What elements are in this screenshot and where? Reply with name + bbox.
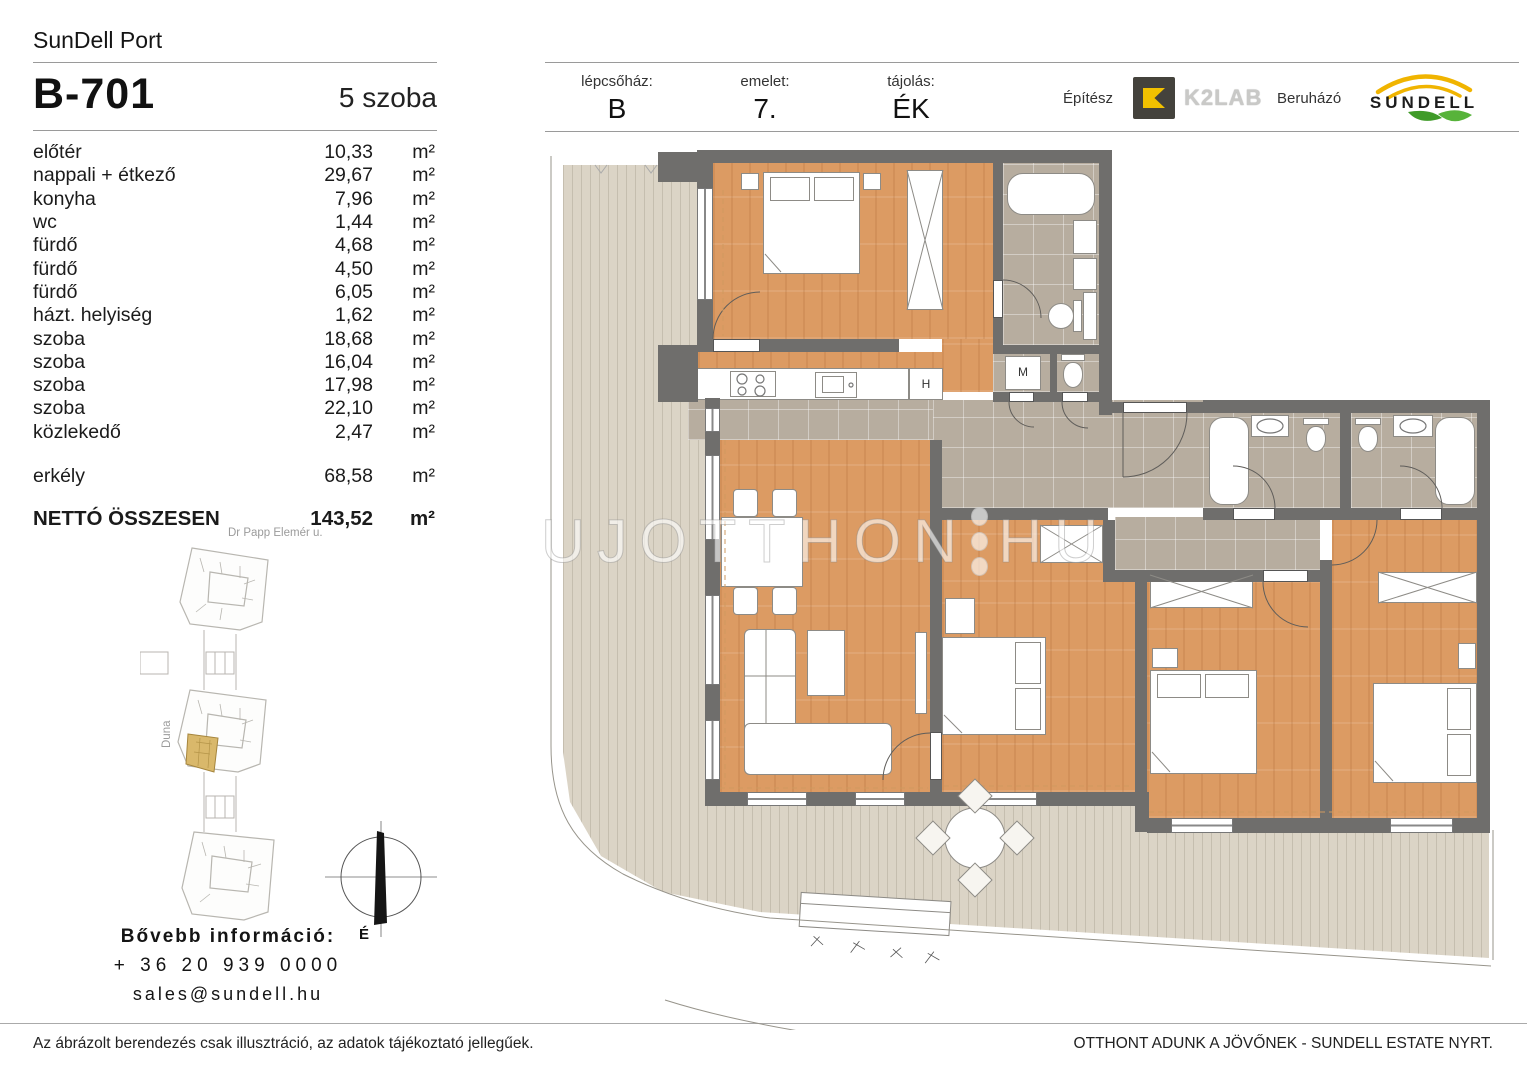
pillow bbox=[1015, 688, 1041, 730]
wall bbox=[905, 792, 975, 806]
bathtub-icon bbox=[1007, 173, 1095, 215]
nightstand bbox=[1152, 648, 1178, 668]
area-unit: m² bbox=[373, 211, 435, 234]
window bbox=[705, 720, 720, 780]
pillow bbox=[1157, 674, 1201, 698]
wall bbox=[1088, 392, 1110, 402]
door-threshold bbox=[930, 732, 942, 780]
river-label: Duna bbox=[161, 720, 173, 748]
toilet-icon bbox=[1048, 303, 1074, 329]
north-needle-icon bbox=[374, 831, 387, 925]
table-row: konyha7,96m² bbox=[33, 188, 435, 211]
wall bbox=[1203, 400, 1490, 413]
room-name: szoba bbox=[33, 328, 283, 351]
project-title: SunDell Port bbox=[33, 27, 162, 54]
area-unit: m² bbox=[373, 421, 435, 444]
slogan-text: OTTHONT ADUNK A JÖVŐNEK - SUNDELL ESTATE… bbox=[1074, 1035, 1493, 1053]
wall bbox=[1105, 402, 1123, 413]
balcony-row: erkély68,58m² bbox=[33, 465, 435, 488]
wall bbox=[760, 339, 899, 352]
architect-label: Építész bbox=[1063, 90, 1113, 107]
street-label: Dr Papp Elemér u. bbox=[228, 527, 323, 539]
area-unit: m² bbox=[373, 328, 435, 351]
staircase-value: B bbox=[552, 93, 682, 125]
room-name: fürdő bbox=[33, 258, 283, 281]
area-unit: m² bbox=[373, 234, 435, 257]
north-label: É bbox=[359, 926, 369, 943]
leaf-icon bbox=[1408, 111, 1442, 121]
developer-label: Beruházó bbox=[1277, 90, 1341, 107]
room-name: wc bbox=[33, 211, 283, 234]
window bbox=[747, 792, 807, 806]
toilet-icon bbox=[1306, 426, 1326, 452]
connector bbox=[204, 772, 236, 832]
area-unit: m² bbox=[373, 281, 435, 304]
room-area: 68,58 bbox=[283, 465, 373, 488]
wall bbox=[1340, 413, 1351, 510]
kitchen-floor bbox=[688, 400, 935, 440]
room-name: fürdő bbox=[33, 281, 283, 304]
washbasin-icon bbox=[1393, 415, 1433, 437]
bathtub-icon bbox=[1209, 417, 1249, 505]
washbasin-icon bbox=[1251, 415, 1289, 437]
nightstand bbox=[741, 173, 759, 190]
terrace-door bbox=[855, 792, 905, 806]
sofa-chaise bbox=[744, 723, 892, 775]
room-area: 17,98 bbox=[283, 374, 373, 397]
toilet-tank bbox=[1303, 418, 1329, 425]
room-area: 7,96 bbox=[283, 188, 373, 211]
disclaimer-text: Az ábrázolt berendezés csak illusztráció… bbox=[33, 1035, 534, 1053]
k2lab-flag-icon bbox=[1143, 88, 1165, 108]
room-name: házt. helyiség bbox=[33, 304, 283, 327]
room-name: szoba bbox=[33, 351, 283, 374]
toilet-tank bbox=[1073, 300, 1082, 332]
room-count-label: 5 szoba bbox=[230, 82, 437, 114]
divider bbox=[545, 131, 1519, 132]
room-area: 22,10 bbox=[283, 397, 373, 420]
door-threshold bbox=[1009, 392, 1034, 402]
floor-label: emelet: bbox=[700, 73, 830, 90]
wall bbox=[993, 345, 1110, 354]
door-threshold bbox=[993, 280, 1003, 318]
wall bbox=[807, 792, 855, 806]
toilet-tank bbox=[1061, 354, 1085, 361]
table-row: fürdő4,50m² bbox=[33, 257, 435, 280]
table-row: fürdő6,05m² bbox=[33, 281, 435, 304]
pillow bbox=[814, 177, 854, 201]
wall bbox=[1037, 792, 1147, 806]
watermark: UJOTTHON HU bbox=[541, 506, 1341, 576]
area-unit: m² bbox=[373, 465, 435, 488]
area-unit: m² bbox=[373, 397, 435, 420]
window bbox=[1171, 818, 1233, 833]
bathtub-icon bbox=[1435, 417, 1475, 505]
wall bbox=[658, 152, 702, 182]
toilet-icon bbox=[1063, 362, 1083, 388]
developer-name: SUNDELL bbox=[1370, 93, 1478, 112]
wall bbox=[705, 432, 720, 455]
table-row: wc1,44m² bbox=[33, 211, 435, 234]
fridge-label: H bbox=[910, 377, 942, 391]
room-area: 29,67 bbox=[283, 164, 373, 187]
door-threshold bbox=[1062, 392, 1088, 402]
table-row: szoba17,98m² bbox=[33, 374, 435, 397]
watermark-dots-icon bbox=[971, 507, 988, 576]
contact-email[interactable]: sales@sundell.hu bbox=[78, 984, 378, 1005]
wall bbox=[1477, 413, 1490, 833]
washing-machine-icon: M bbox=[1005, 356, 1041, 390]
wall bbox=[697, 163, 713, 188]
room-name: erkély bbox=[33, 465, 283, 488]
toilet-icon bbox=[1358, 426, 1378, 452]
orientation-info: tájolás: ÉK bbox=[846, 73, 976, 125]
dining-chair bbox=[772, 587, 797, 615]
room-name: szoba bbox=[33, 397, 283, 420]
corridor-floor bbox=[942, 339, 993, 392]
nightstand bbox=[863, 173, 881, 190]
window bbox=[1390, 818, 1453, 833]
shelf bbox=[1073, 258, 1097, 290]
room-name: előtér bbox=[33, 141, 283, 164]
floor-plan: M H bbox=[545, 140, 1527, 1030]
wall bbox=[1050, 354, 1057, 394]
entry-door-threshold bbox=[1123, 402, 1187, 413]
door-threshold bbox=[713, 339, 760, 352]
wall bbox=[705, 685, 720, 720]
table-row: közlekedő2,47m² bbox=[33, 421, 435, 444]
table-row: előtér10,33m² bbox=[33, 141, 435, 164]
wardrobe bbox=[907, 170, 943, 310]
room-area: 1,44 bbox=[283, 211, 373, 234]
toilet-tank bbox=[1355, 418, 1381, 425]
table-row: házt. helyiség1,62m² bbox=[33, 304, 435, 327]
k2lab-logo-icon bbox=[1133, 77, 1175, 119]
wall bbox=[993, 318, 1003, 348]
area-unit: m² bbox=[373, 374, 435, 397]
pillow bbox=[770, 177, 810, 201]
pillow bbox=[1447, 688, 1471, 730]
room-name: konyha bbox=[33, 188, 283, 211]
wall bbox=[1135, 582, 1147, 818]
wall bbox=[697, 150, 1112, 163]
room-area: 16,04 bbox=[283, 351, 373, 374]
terrace-door bbox=[705, 408, 720, 432]
room-name: fürdő bbox=[33, 234, 283, 257]
sink-basin bbox=[822, 376, 844, 393]
architect-name: K2LAB bbox=[1184, 85, 1262, 111]
watermark-right: HU bbox=[998, 506, 1110, 576]
table-row: szoba18,68m² bbox=[33, 327, 435, 350]
sun-arc-icon bbox=[1378, 76, 1470, 92]
room-area: 18,68 bbox=[283, 328, 373, 351]
shelf bbox=[1073, 220, 1097, 254]
door-threshold bbox=[1400, 508, 1442, 520]
area-unit: m² bbox=[373, 164, 435, 187]
compass: É bbox=[321, 815, 441, 945]
room-area: 10,33 bbox=[283, 141, 373, 164]
wall bbox=[1442, 508, 1490, 520]
table-row: fürdő4,68m² bbox=[33, 234, 435, 257]
staircase-label: lépcsőház: bbox=[552, 73, 682, 90]
table-row: szoba16,04m² bbox=[33, 351, 435, 374]
orientation-value: ÉK bbox=[846, 93, 976, 125]
room-name: nappali + étkező bbox=[33, 164, 283, 187]
dining-chair bbox=[733, 587, 758, 615]
divider bbox=[33, 130, 437, 131]
wardrobe bbox=[1378, 572, 1477, 603]
wall bbox=[658, 345, 698, 402]
pillow bbox=[1015, 642, 1041, 684]
cooktop-icon bbox=[730, 371, 776, 397]
wall bbox=[1233, 818, 1390, 833]
room-name: közlekedő bbox=[33, 421, 283, 444]
tv-stand bbox=[915, 632, 927, 714]
contact-phone[interactable]: + 36 20 939 0000 bbox=[78, 955, 378, 977]
room-area: 6,05 bbox=[283, 281, 373, 304]
area-unit: m² bbox=[373, 258, 435, 281]
area-unit: m² bbox=[373, 188, 435, 211]
table-row: nappali + étkező29,67m² bbox=[33, 164, 435, 187]
nightstand bbox=[945, 598, 975, 634]
building-block-top bbox=[180, 548, 268, 630]
coffee-table bbox=[807, 630, 845, 696]
nightstand bbox=[1458, 643, 1476, 669]
window bbox=[697, 188, 713, 300]
wall bbox=[993, 392, 1009, 402]
room-name: szoba bbox=[33, 374, 283, 397]
connector bbox=[140, 630, 236, 690]
staircase-info: lépcsőház: B bbox=[552, 73, 682, 125]
brochure-page: SunDell Port B-701 5 szoba lépcsőház: B … bbox=[0, 0, 1527, 1080]
wall bbox=[1453, 818, 1490, 833]
area-table: előtér10,33m² nappali + étkező29,67m² ko… bbox=[33, 141, 435, 530]
fridge-icon: H bbox=[909, 368, 943, 400]
floor-value: 7. bbox=[700, 93, 830, 125]
wall bbox=[930, 440, 942, 732]
wall bbox=[993, 163, 1003, 280]
room-area: 4,50 bbox=[283, 258, 373, 281]
room-area: 4,68 bbox=[283, 234, 373, 257]
wall bbox=[1320, 582, 1332, 818]
wall bbox=[1099, 150, 1112, 415]
building-block-bottom bbox=[182, 832, 274, 920]
washing-machine-label: M bbox=[1006, 365, 1040, 379]
table-row: szoba22,10m² bbox=[33, 397, 435, 420]
window bbox=[705, 595, 720, 685]
sundell-logo: SUNDELL bbox=[1350, 62, 1500, 130]
kitchen-counter bbox=[695, 368, 909, 400]
window bbox=[975, 792, 1037, 806]
floor-info: emelet: 7. bbox=[700, 73, 830, 125]
room-area: 2,47 bbox=[283, 421, 373, 444]
area-unit: m² bbox=[373, 351, 435, 374]
wall bbox=[1034, 392, 1062, 402]
orientation-label: tájolás: bbox=[846, 73, 976, 90]
wall bbox=[1147, 818, 1171, 833]
hallway-floor bbox=[933, 400, 1205, 508]
wall bbox=[697, 300, 713, 352]
area-unit: m² bbox=[373, 141, 435, 164]
wall bbox=[705, 792, 747, 806]
cabinet bbox=[1083, 292, 1097, 340]
watermark-left: UJOTTHON bbox=[541, 506, 969, 576]
wall bbox=[705, 398, 720, 408]
divider bbox=[33, 62, 437, 63]
area-unit: m² bbox=[373, 304, 435, 327]
unit-number: B-701 bbox=[33, 70, 155, 119]
pillow bbox=[1205, 674, 1249, 698]
pillow bbox=[1447, 734, 1471, 776]
room-area: 1,62 bbox=[283, 304, 373, 327]
